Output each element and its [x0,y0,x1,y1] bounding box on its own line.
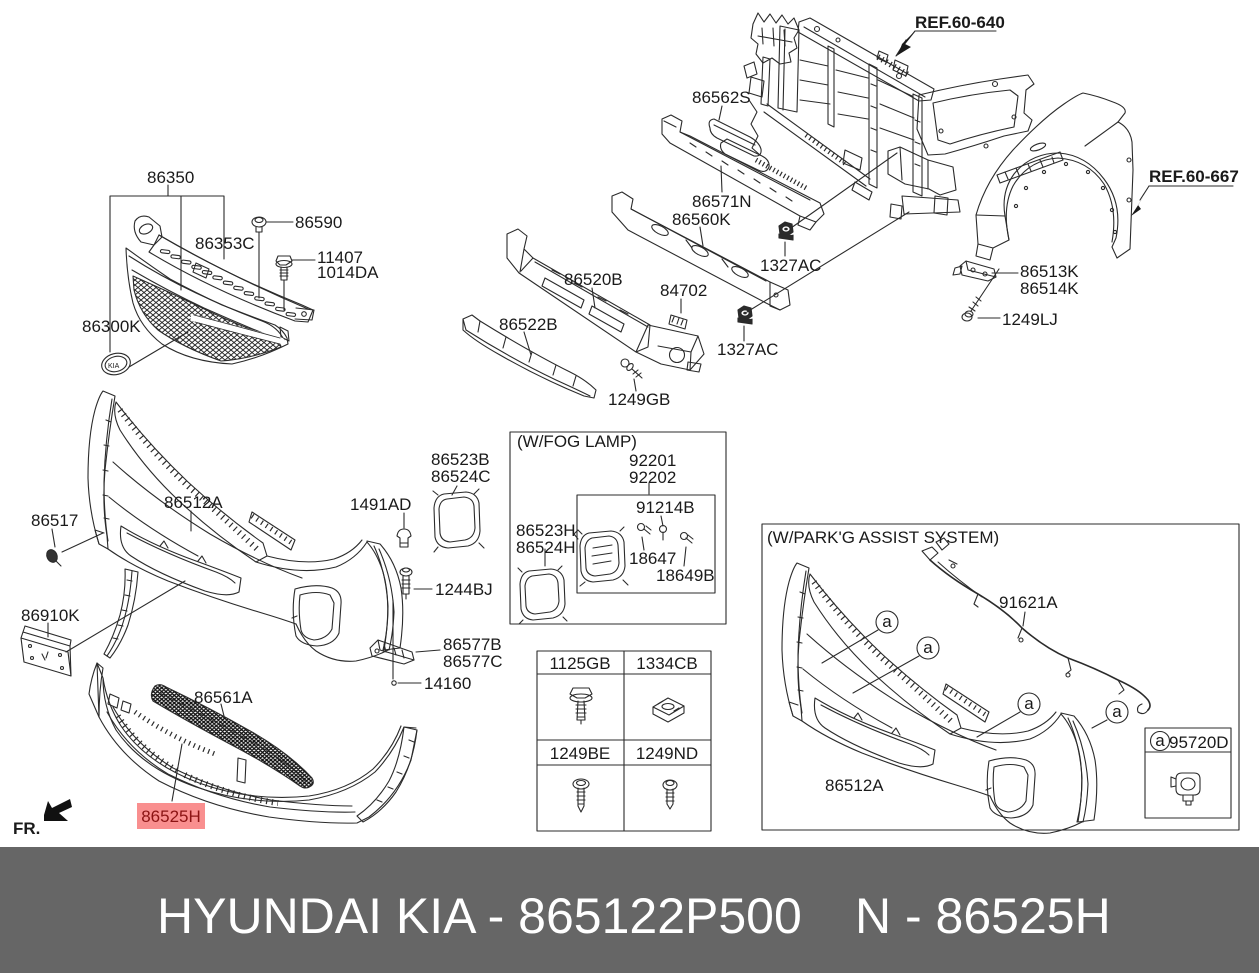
svg-text:86514K: 86514K [1020,279,1079,298]
svg-text:86522B: 86522B [499,315,558,334]
svg-text:1125GB: 1125GB [549,654,610,673]
svg-text:HYUNDAI KIA - 865122P500: HYUNDAI KIA - 865122P500 [157,888,802,944]
svg-text:86590: 86590 [295,213,342,232]
svg-text:1249ND: 1249ND [636,744,698,763]
svg-text:1327AC: 1327AC [760,256,821,275]
svg-text:86910K: 86910K [21,606,80,625]
svg-text:a: a [882,612,892,631]
svg-text:(W/FOG LAMP): (W/FOG LAMP) [517,432,637,451]
svg-text:92202: 92202 [629,468,676,487]
svg-text:86520B: 86520B [564,270,623,289]
svg-text:86561A: 86561A [194,688,253,707]
svg-text:84702: 84702 [660,281,707,300]
svg-text:1244BJ: 1244BJ [435,580,493,599]
svg-text:86562S: 86562S [692,88,751,107]
svg-text:a: a [1024,694,1034,713]
svg-text:REF.60-667: REF.60-667 [1149,167,1239,186]
svg-text:FR.: FR. [13,819,40,838]
svg-text:1249LJ: 1249LJ [1002,310,1058,329]
svg-text:91214B: 91214B [636,498,695,517]
svg-text:1491AD: 1491AD [350,495,411,514]
svg-text:86571N: 86571N [692,192,752,211]
svg-text:14160: 14160 [424,674,471,693]
svg-text:86350: 86350 [147,168,194,187]
svg-text:86512A: 86512A [825,776,884,795]
svg-text:KIA: KIA [108,363,120,370]
svg-text:86524H: 86524H [516,538,576,557]
svg-text:1014DA: 1014DA [317,263,379,282]
svg-text:86512A: 86512A [164,493,223,512]
svg-text:86525H: 86525H [141,807,201,826]
svg-text:86300K: 86300K [82,317,141,336]
svg-text:REF.60-640: REF.60-640 [915,13,1005,32]
svg-text:1249GB: 1249GB [608,390,670,409]
svg-text:1334CB: 1334CB [636,654,697,673]
svg-text:1327AC: 1327AC [717,340,778,359]
svg-text:N - 86525H: N - 86525H [855,888,1111,944]
svg-text:86524C: 86524C [431,467,491,486]
svg-text:86353C: 86353C [195,234,255,253]
svg-text:18649B: 18649B [656,566,715,585]
svg-text:86560K: 86560K [672,210,731,229]
svg-text:(W/PARK'G ASSIST SYSTEM): (W/PARK'G ASSIST SYSTEM) [767,528,999,547]
svg-text:1249BE: 1249BE [550,744,611,763]
svg-text:86517: 86517 [31,511,78,530]
svg-text:95720D: 95720D [1169,733,1229,752]
svg-text:91621A: 91621A [999,593,1058,612]
svg-text:a: a [1155,731,1165,750]
svg-text:a: a [1112,702,1122,721]
svg-text:a: a [923,638,933,657]
svg-text:86577C: 86577C [443,652,503,671]
